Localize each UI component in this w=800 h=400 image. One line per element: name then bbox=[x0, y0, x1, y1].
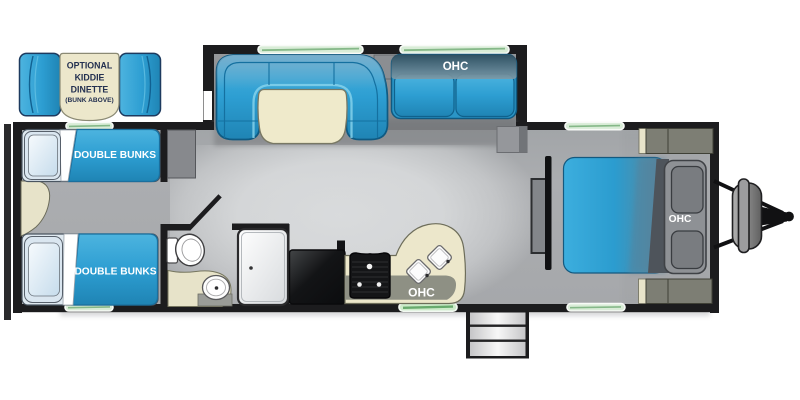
svg-text:OHC: OHC bbox=[408, 286, 435, 300]
svg-text:OHC: OHC bbox=[669, 214, 692, 225]
svg-text:OPTIONAL: OPTIONAL bbox=[67, 61, 113, 71]
svg-text:OHC: OHC bbox=[443, 61, 469, 73]
svg-text:DOUBLE BUNKS: DOUBLE BUNKS bbox=[74, 150, 156, 161]
svg-text:KIDDIE: KIDDIE bbox=[75, 73, 105, 83]
svg-text:(BUNK ABOVE): (BUNK ABOVE) bbox=[65, 97, 113, 104]
svg-text:DOUBLE BUNKS: DOUBLE BUNKS bbox=[74, 267, 156, 278]
svg-text:DINETTE: DINETTE bbox=[71, 85, 109, 95]
